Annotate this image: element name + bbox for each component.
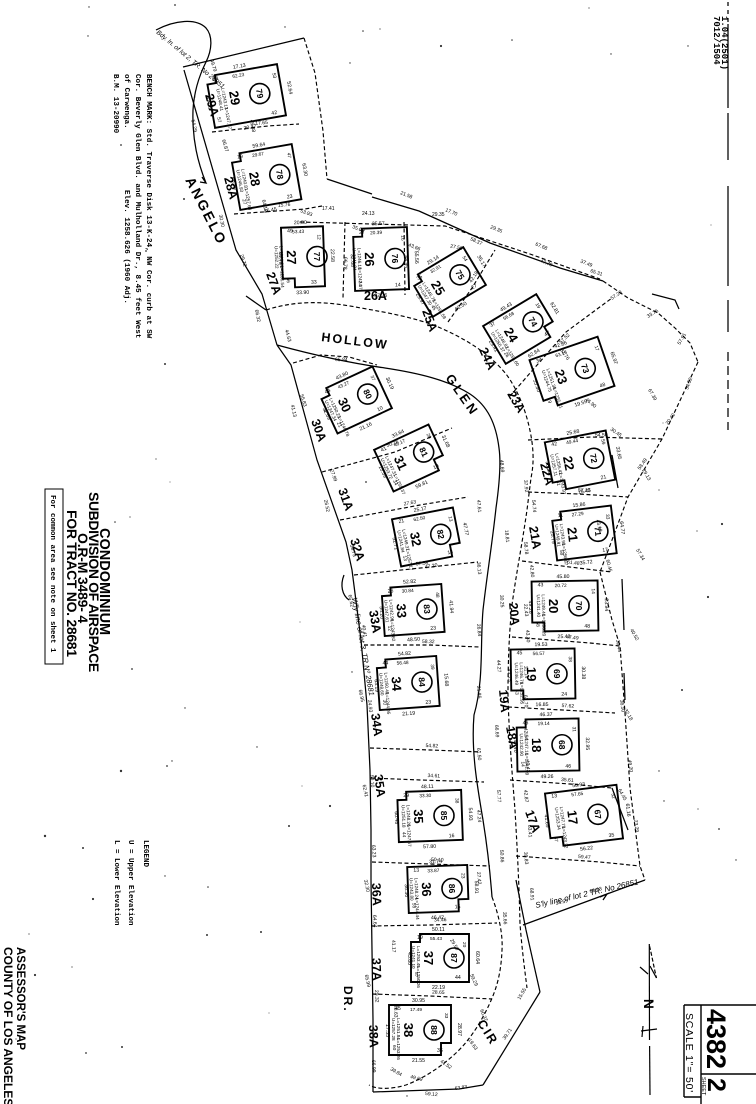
svg-text:L=1247.57: L=1247.57 bbox=[406, 825, 412, 847]
svg-text:50.11: 50.11 bbox=[432, 927, 445, 933]
svg-text:17: 17 bbox=[602, 547, 609, 554]
svg-text:41.94: 41.94 bbox=[447, 600, 454, 613]
svg-text:21.19: 21.19 bbox=[402, 711, 415, 718]
svg-text:35: 35 bbox=[411, 809, 426, 824]
svg-text:36: 36 bbox=[437, 1048, 443, 1054]
svg-text:58: 58 bbox=[558, 550, 565, 556]
svg-text:23: 23 bbox=[459, 873, 465, 879]
svg-text:33: 33 bbox=[443, 1013, 449, 1019]
svg-text:22.58: 22.58 bbox=[329, 249, 335, 262]
svg-text:48: 48 bbox=[434, 592, 440, 598]
svg-text:39.83: 39.83 bbox=[522, 852, 529, 865]
svg-text:19: 19 bbox=[237, 154, 244, 161]
svg-text:48: 48 bbox=[584, 624, 590, 630]
svg-text:30.95: 30.95 bbox=[412, 998, 425, 1004]
svg-text:L=1247.47: L=1247.47 bbox=[357, 268, 363, 290]
svg-text:42.54: 42.54 bbox=[522, 728, 529, 741]
svg-text:20: 20 bbox=[461, 942, 467, 948]
svg-text:43: 43 bbox=[538, 582, 544, 588]
svg-text:36.36: 36.36 bbox=[403, 884, 409, 897]
svg-text:57.25: 57.25 bbox=[578, 488, 591, 495]
svg-text:47.49: 47.49 bbox=[566, 635, 579, 642]
svg-text:U=1241.40: U=1241.40 bbox=[536, 594, 541, 617]
svg-text:50.86: 50.86 bbox=[498, 850, 505, 863]
svg-text:11: 11 bbox=[557, 512, 563, 519]
svg-text:37: 37 bbox=[552, 836, 559, 842]
svg-text:4382: 4382 bbox=[701, 1009, 731, 1069]
svg-text:24: 24 bbox=[212, 76, 219, 83]
svg-text:33: 33 bbox=[604, 514, 611, 520]
svg-text:24.13: 24.13 bbox=[362, 211, 375, 217]
svg-text:58: 58 bbox=[534, 621, 540, 627]
svg-text:76: 76 bbox=[390, 254, 400, 264]
svg-text:68.91: 68.91 bbox=[528, 888, 535, 901]
svg-text:14: 14 bbox=[590, 588, 596, 594]
svg-text:DR.: DR. bbox=[341, 986, 355, 1013]
svg-text:44.27: 44.27 bbox=[495, 660, 502, 673]
svg-text:59.10: 59.10 bbox=[368, 775, 375, 788]
svg-text:39: 39 bbox=[429, 664, 435, 670]
svg-text:63.19: 63.19 bbox=[373, 679, 380, 692]
svg-text:63.23: 63.23 bbox=[370, 845, 377, 858]
svg-text:26.84: 26.84 bbox=[475, 624, 482, 637]
svg-text:13: 13 bbox=[413, 868, 419, 874]
svg-text:FOR TRACT NO. 28681: FOR TRACT NO. 28681 bbox=[64, 510, 80, 657]
svg-text:54.74: 54.74 bbox=[530, 500, 537, 513]
svg-text:31.14: 31.14 bbox=[522, 666, 529, 679]
svg-text:47.24: 47.24 bbox=[475, 810, 482, 823]
svg-text:56.48: 56.48 bbox=[396, 660, 409, 667]
svg-text:26: 26 bbox=[387, 588, 393, 594]
svg-text:83: 83 bbox=[422, 604, 433, 614]
svg-text:30.84: 30.84 bbox=[401, 588, 414, 595]
svg-text:69: 69 bbox=[552, 669, 562, 679]
svg-text:44: 44 bbox=[455, 975, 461, 981]
svg-text:17: 17 bbox=[564, 809, 581, 825]
svg-text:Elev. 1258.626 (1960 Adj.: Elev. 1258.626 (1960 Adj. bbox=[122, 190, 130, 304]
svg-text:29.35: 29.35 bbox=[432, 212, 445, 218]
svg-text:79: 79 bbox=[254, 88, 266, 99]
svg-text:34.46: 34.46 bbox=[434, 917, 447, 923]
svg-text:23: 23 bbox=[430, 625, 436, 631]
svg-text:34: 34 bbox=[357, 281, 363, 287]
svg-text:60.48: 60.48 bbox=[393, 811, 399, 824]
svg-text:66.78: 66.78 bbox=[342, 257, 348, 270]
svg-text:54.82: 54.82 bbox=[425, 743, 438, 749]
svg-text:57.80: 57.80 bbox=[423, 844, 436, 850]
svg-text:28.65: 28.65 bbox=[432, 990, 445, 997]
svg-text:30.38: 30.38 bbox=[580, 666, 586, 679]
svg-text:19: 19 bbox=[417, 935, 423, 941]
svg-text:22.43: 22.43 bbox=[522, 604, 529, 617]
svg-text:of Carwenga.: of Carwenga. bbox=[122, 74, 130, 129]
svg-text:34: 34 bbox=[389, 676, 405, 692]
svg-text:32.68: 32.68 bbox=[349, 254, 355, 267]
svg-text:88: 88 bbox=[429, 1025, 439, 1035]
svg-text:BENCH MARK: Std. Traverse Disk: BENCH MARK: Std. Traverse Disk 13-K-24, … bbox=[144, 74, 152, 339]
svg-text:16: 16 bbox=[399, 235, 405, 241]
svg-text:50.10: 50.10 bbox=[431, 857, 444, 863]
svg-text:33: 33 bbox=[311, 280, 317, 286]
svg-text:35.66: 35.66 bbox=[501, 912, 508, 925]
svg-text:30.25: 30.25 bbox=[498, 595, 505, 608]
svg-text:70: 70 bbox=[574, 601, 584, 611]
svg-text:63.41: 63.41 bbox=[526, 825, 533, 838]
svg-text:L=1258.20: L=1258.20 bbox=[541, 614, 546, 636]
svg-text:42.80: 42.80 bbox=[528, 565, 535, 578]
svg-text:20.80: 20.80 bbox=[294, 220, 307, 226]
svg-text:38: 38 bbox=[401, 1023, 416, 1037]
svg-text:46: 46 bbox=[565, 764, 571, 770]
svg-text:37: 37 bbox=[421, 951, 436, 965]
svg-text:U=1246.49: U=1246.49 bbox=[514, 662, 519, 685]
svg-text:COUNTY OF LOS ANGELES, CALIF.: COUNTY OF LOS ANGELES, CALIF. bbox=[1, 947, 15, 1104]
svg-text:65.84: 65.84 bbox=[335, 357, 348, 363]
svg-text:29.32: 29.32 bbox=[373, 990, 379, 1003]
svg-text:19A: 19A bbox=[496, 689, 512, 713]
svg-text:43.43: 43.43 bbox=[524, 760, 531, 773]
svg-text:52.82: 52.82 bbox=[403, 579, 416, 586]
svg-text:32: 32 bbox=[609, 793, 616, 799]
svg-text:47.61: 47.61 bbox=[475, 500, 482, 513]
svg-text:56: 56 bbox=[285, 277, 291, 283]
svg-text:LEGEND: LEGEND bbox=[141, 840, 149, 868]
svg-text:68: 68 bbox=[557, 740, 567, 750]
svg-text:35.61: 35.61 bbox=[561, 777, 574, 784]
svg-text:26: 26 bbox=[362, 252, 377, 267]
svg-text:66.99: 66.99 bbox=[370, 1060, 376, 1073]
svg-text:12: 12 bbox=[315, 234, 321, 240]
svg-text:21: 21 bbox=[564, 526, 581, 542]
svg-text:84: 84 bbox=[417, 677, 428, 687]
svg-text:57: 57 bbox=[413, 972, 419, 978]
svg-text:36.13: 36.13 bbox=[475, 562, 482, 575]
svg-text:1.04(2501): 1.04(2501) bbox=[719, 16, 729, 70]
svg-text:L = Lower Elevation: L = Lower Elevation bbox=[112, 840, 120, 926]
svg-text:25.57: 25.57 bbox=[372, 221, 385, 227]
svg-text:58.78: 58.78 bbox=[522, 542, 529, 555]
svg-text:60: 60 bbox=[391, 1045, 397, 1051]
svg-text:49: 49 bbox=[287, 228, 293, 234]
svg-text:38: 38 bbox=[567, 656, 573, 662]
svg-text:L=1244.44: L=1244.44 bbox=[414, 898, 420, 920]
svg-text:38A: 38A bbox=[366, 1025, 381, 1048]
svg-text:26A: 26A bbox=[364, 289, 387, 303]
svg-text:20: 20 bbox=[546, 599, 561, 614]
svg-text:21.55: 21.55 bbox=[412, 1058, 425, 1064]
svg-text:37.92: 37.92 bbox=[522, 480, 529, 493]
svg-text:17.55: 17.55 bbox=[384, 1024, 390, 1037]
svg-text:42: 42 bbox=[271, 110, 278, 117]
svg-text:86: 86 bbox=[447, 884, 457, 894]
svg-text:17.65: 17.65 bbox=[255, 120, 268, 127]
svg-text:13: 13 bbox=[551, 793, 558, 800]
svg-text:Cor. Beverly Glen Blvd. and Mu: Cor. Beverly Glen Blvd. and Mulholland D… bbox=[133, 74, 141, 338]
svg-text:55.43: 55.43 bbox=[430, 936, 442, 942]
svg-text:48.11: 48.11 bbox=[421, 784, 434, 790]
svg-text:32.95: 32.95 bbox=[584, 737, 590, 750]
svg-text:46: 46 bbox=[523, 720, 529, 726]
svg-text:57.77: 57.77 bbox=[495, 790, 502, 803]
svg-text:38: 38 bbox=[453, 798, 459, 804]
svg-text:36: 36 bbox=[419, 882, 434, 897]
svg-text:58.95: 58.95 bbox=[403, 255, 409, 268]
svg-text:2: 2 bbox=[702, 1078, 730, 1092]
svg-text:35: 35 bbox=[608, 832, 615, 839]
svg-text:17.41: 17.41 bbox=[322, 206, 335, 212]
svg-text:23: 23 bbox=[286, 194, 293, 201]
svg-text:20A: 20A bbox=[506, 602, 522, 626]
svg-text:44: 44 bbox=[382, 660, 388, 666]
svg-text:23: 23 bbox=[425, 699, 431, 705]
svg-text:62.70: 62.70 bbox=[522, 695, 529, 708]
svg-text:44.78: 44.78 bbox=[277, 252, 283, 265]
svg-text:37A: 37A bbox=[369, 958, 384, 981]
svg-text:15.76: 15.76 bbox=[278, 202, 291, 209]
svg-text:23.94: 23.94 bbox=[603, 598, 609, 611]
svg-text:N: N bbox=[641, 999, 656, 1009]
svg-text:30: 30 bbox=[381, 699, 387, 705]
svg-text:24: 24 bbox=[561, 692, 567, 698]
svg-text:55.56: 55.56 bbox=[413, 251, 419, 264]
svg-text:18.81: 18.81 bbox=[503, 530, 510, 543]
svg-text:66.69: 66.69 bbox=[493, 725, 500, 738]
svg-text:43.80: 43.80 bbox=[406, 952, 412, 965]
svg-text:43.30: 43.30 bbox=[524, 630, 531, 643]
svg-text:54.93: 54.93 bbox=[467, 808, 473, 821]
svg-text:33.30: 33.30 bbox=[419, 793, 432, 799]
svg-text:19.53: 19.53 bbox=[534, 642, 547, 648]
svg-text:49.26: 49.26 bbox=[541, 774, 554, 780]
svg-text:43: 43 bbox=[513, 689, 519, 695]
svg-text:60.64: 60.64 bbox=[474, 951, 480, 964]
svg-text:U=1257.28: U=1257.28 bbox=[391, 1018, 396, 1041]
svg-text:27: 27 bbox=[284, 250, 299, 265]
svg-text:57.62: 57.62 bbox=[561, 703, 574, 710]
svg-text:59.47: 59.47 bbox=[578, 854, 591, 861]
svg-text:36A: 36A bbox=[369, 883, 384, 906]
svg-text:For common area see note on sh: For common area see note on sheet 1 bbox=[48, 495, 56, 653]
svg-text:78: 78 bbox=[274, 169, 286, 180]
svg-text:20.39: 20.39 bbox=[370, 230, 383, 236]
svg-text:15: 15 bbox=[455, 904, 461, 910]
svg-text:58.32: 58.32 bbox=[422, 639, 435, 645]
svg-text:53.43: 53.43 bbox=[292, 229, 305, 235]
svg-text:56.57: 56.57 bbox=[533, 651, 545, 657]
svg-text:45: 45 bbox=[517, 650, 523, 656]
svg-text:U = Upper Elevation: U = Upper Elevation bbox=[126, 840, 134, 926]
svg-text:34.61: 34.61 bbox=[427, 773, 440, 779]
svg-text:28.63: 28.63 bbox=[392, 1005, 398, 1018]
svg-text:17.49: 17.49 bbox=[410, 1007, 422, 1013]
svg-text:12: 12 bbox=[386, 626, 392, 632]
svg-text:SCALE 1"= 50': SCALE 1"= 50' bbox=[683, 1013, 695, 1093]
svg-text:27.42: 27.42 bbox=[475, 872, 482, 885]
svg-text:61.50: 61.50 bbox=[475, 748, 482, 761]
svg-text:64.64: 64.64 bbox=[371, 915, 378, 928]
svg-text:59.12: 59.12 bbox=[425, 1091, 438, 1098]
svg-text:48.50: 48.50 bbox=[407, 637, 420, 644]
svg-text:18: 18 bbox=[529, 738, 544, 753]
svg-text:77: 77 bbox=[312, 252, 322, 262]
svg-text:33.87: 33.87 bbox=[427, 868, 440, 874]
svg-text:87: 87 bbox=[449, 953, 459, 963]
svg-text:41.17: 41.17 bbox=[390, 940, 396, 953]
svg-text:29: 29 bbox=[403, 793, 409, 799]
svg-text:16: 16 bbox=[449, 833, 455, 839]
svg-text:B.M. 13-20990: B.M. 13-20990 bbox=[111, 74, 119, 134]
svg-text:20.72: 20.72 bbox=[555, 583, 567, 589]
svg-text:46.37: 46.37 bbox=[539, 712, 552, 718]
svg-text:55: 55 bbox=[410, 903, 416, 909]
svg-text:U=1251.18: U=1251.18 bbox=[401, 805, 407, 828]
svg-text:14: 14 bbox=[395, 282, 401, 288]
svg-text:31: 31 bbox=[571, 726, 577, 732]
svg-text:42.87: 42.87 bbox=[522, 790, 529, 803]
svg-text:54.50: 54.50 bbox=[595, 432, 608, 438]
svg-text:33: 33 bbox=[394, 603, 410, 618]
svg-text:54.82: 54.82 bbox=[398, 651, 411, 658]
svg-text:45.80: 45.80 bbox=[556, 574, 569, 580]
svg-text:85: 85 bbox=[439, 811, 449, 821]
svg-text:44: 44 bbox=[401, 832, 407, 838]
svg-text:43.25: 43.25 bbox=[506, 669, 512, 682]
svg-text:48.69: 48.69 bbox=[498, 460, 505, 473]
svg-text:21.86: 21.86 bbox=[475, 686, 482, 699]
svg-text:19.14: 19.14 bbox=[538, 721, 550, 727]
svg-text:15.68: 15.68 bbox=[442, 673, 449, 686]
svg-text:16.85: 16.85 bbox=[535, 702, 548, 708]
svg-text:28.97: 28.97 bbox=[456, 1023, 462, 1036]
svg-text:33.90: 33.90 bbox=[296, 290, 309, 296]
svg-text:67: 67 bbox=[592, 809, 603, 820]
